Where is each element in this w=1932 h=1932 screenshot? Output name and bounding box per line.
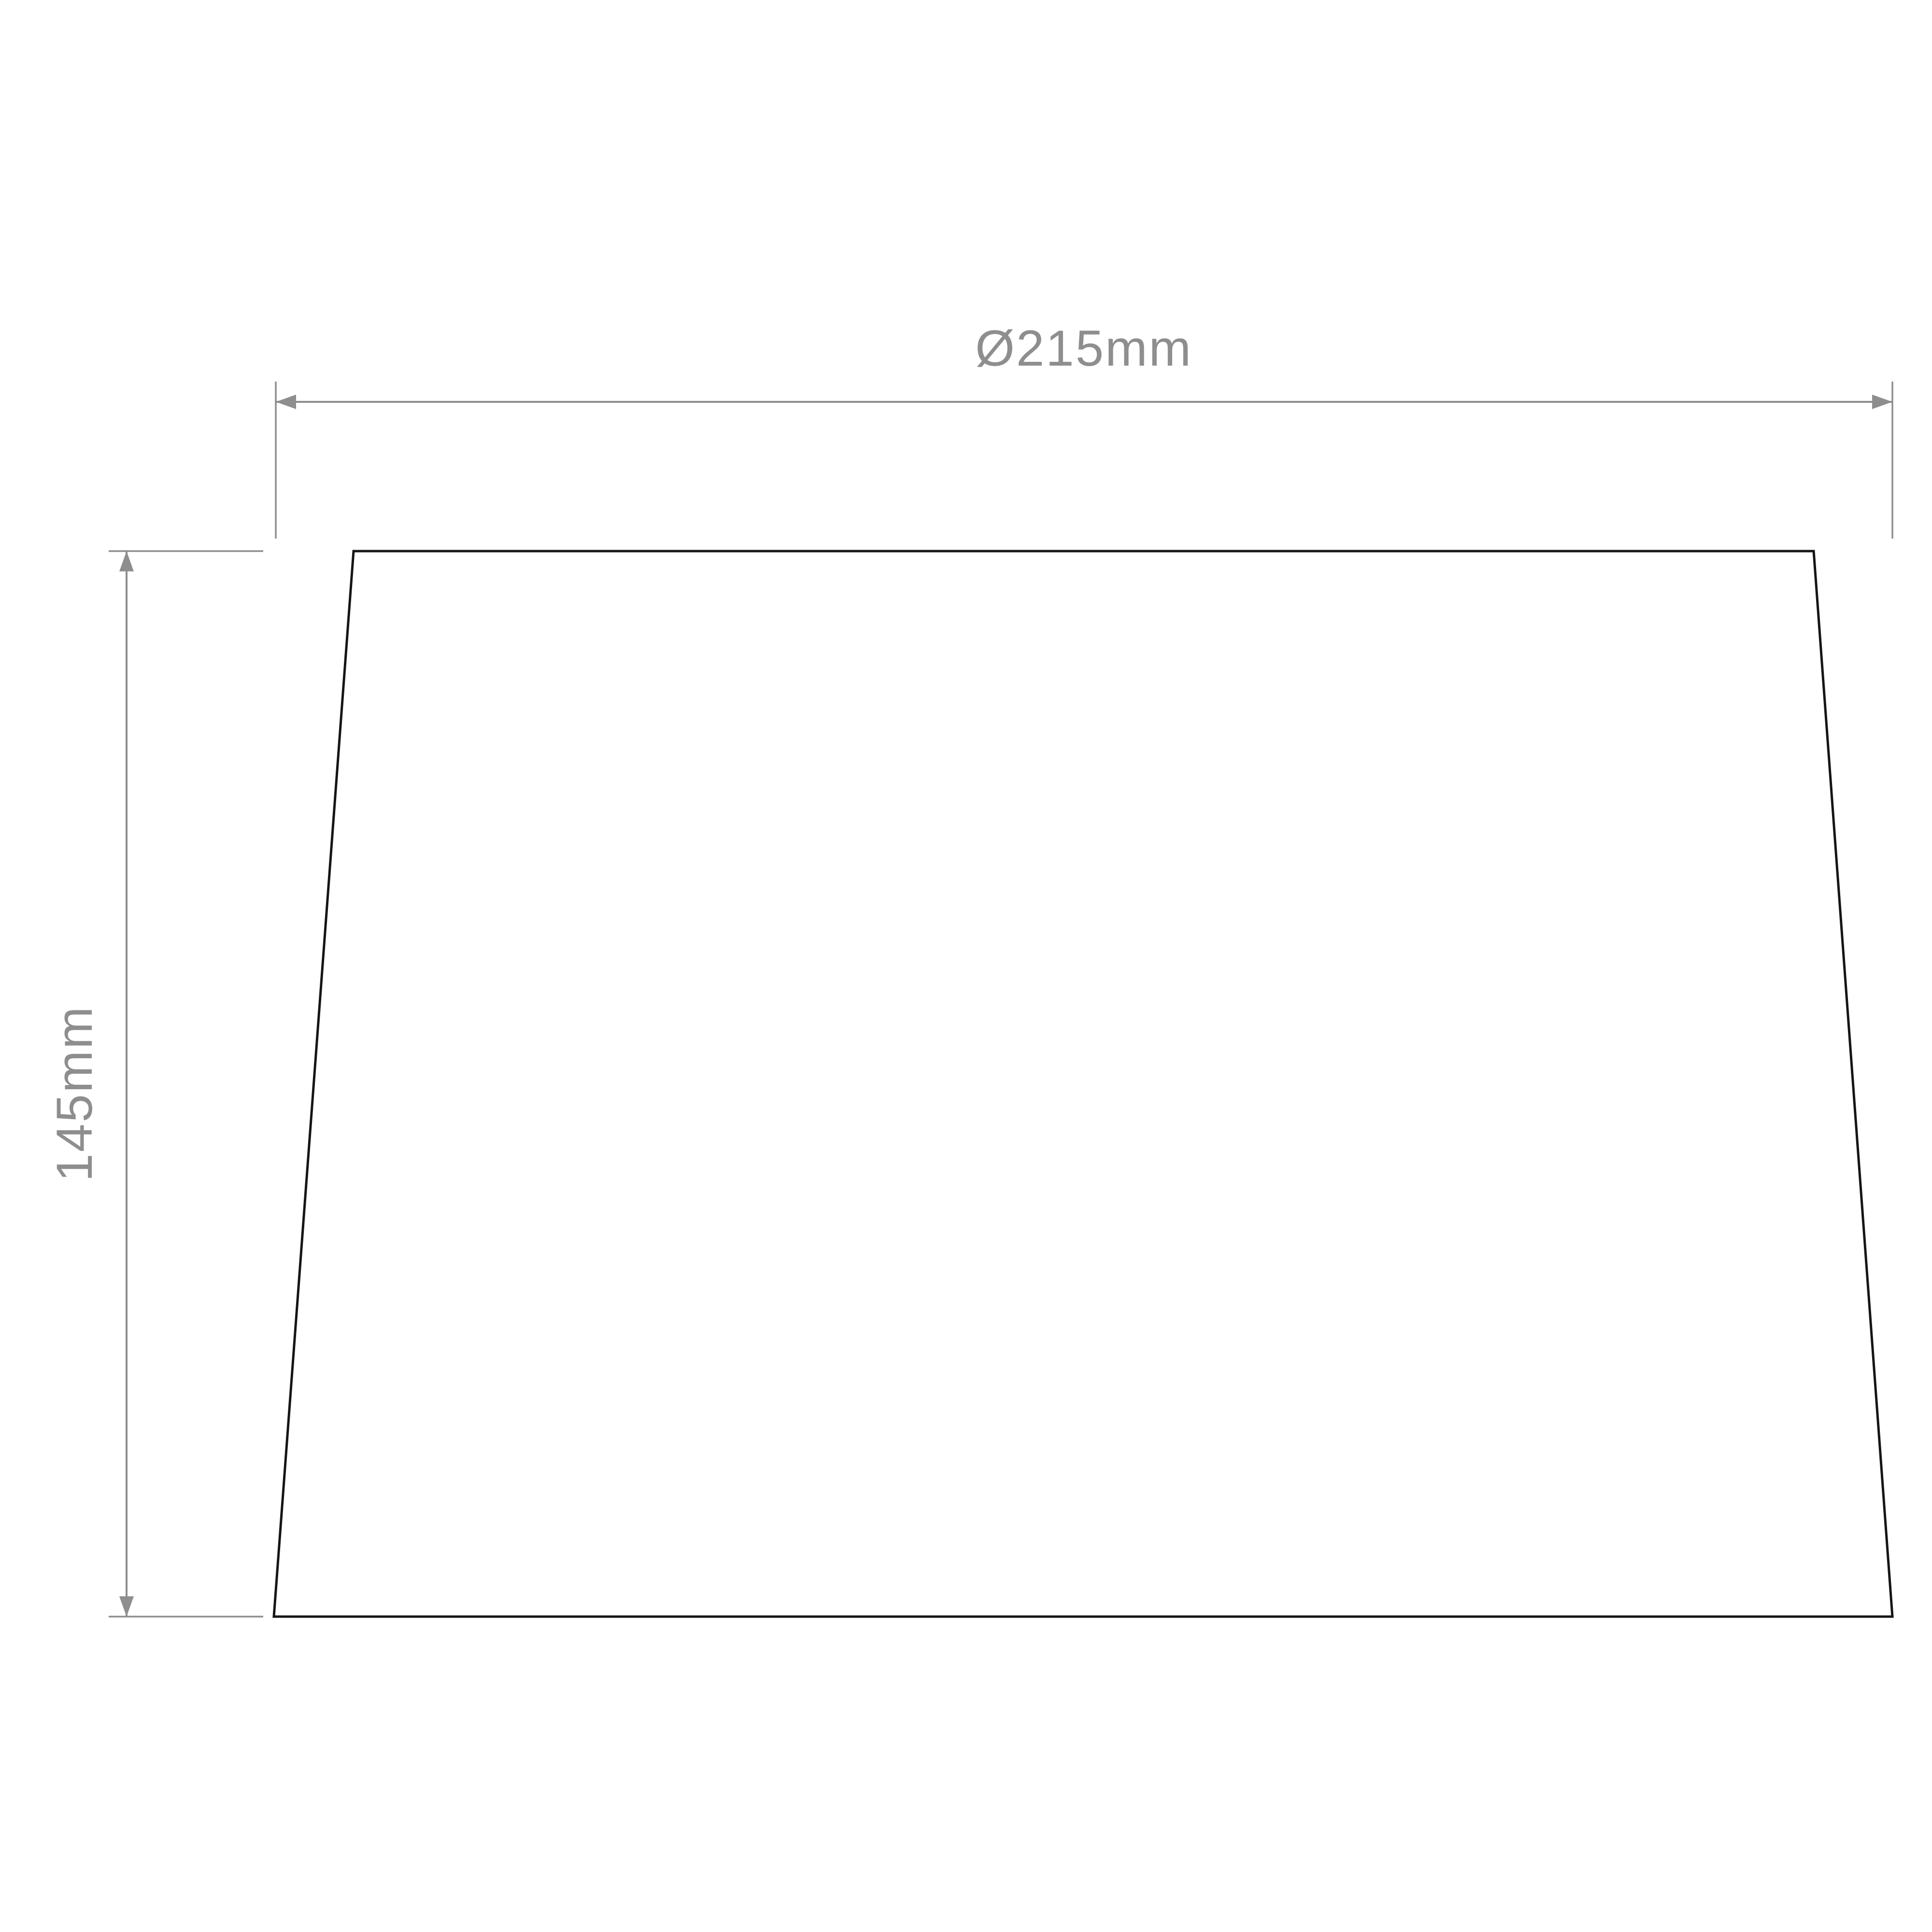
height-arrowhead-bottom-icon (119, 1596, 134, 1617)
diameter-arrowhead-left-icon (276, 395, 296, 409)
diameter-arrowhead-right-icon (1872, 395, 1892, 409)
height-arrowhead-top-icon (119, 551, 134, 571)
height-dimension: 145mm (46, 551, 263, 1617)
height-label: 145mm (46, 1005, 103, 1181)
diameter-dimension: Ø215mm (276, 320, 1892, 539)
lampshade-dimension-drawing: Ø215mm 145mm (0, 0, 1932, 1932)
diameter-label-anchor: Ø215mm (975, 320, 1193, 377)
drawing-canvas: Ø215mm 145mm (0, 0, 1932, 1932)
height-extension-lines (109, 551, 263, 1617)
lampshade-outline (274, 551, 1892, 1617)
diameter-label: Ø215mm (975, 320, 1193, 377)
height-label-anchor: 145mm (46, 1005, 103, 1181)
diameter-extension-lines (276, 382, 1892, 539)
